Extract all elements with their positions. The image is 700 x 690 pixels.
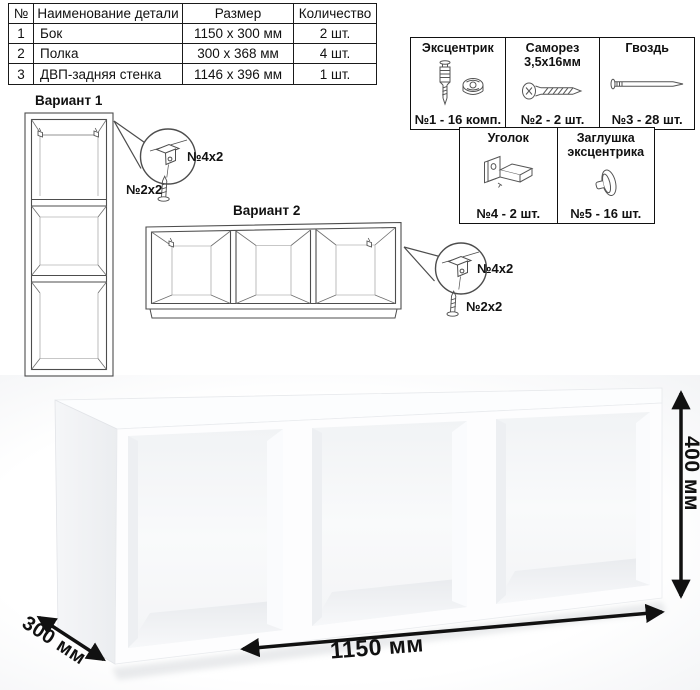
hardware-item-eccentric: Эксцентрик №1 - 16 комп. — [411, 38, 506, 129]
table-cell: Бок — [34, 24, 183, 44]
hardware-item-screw: Саморез 3,5х16мм №2 - 2 шт. — [506, 38, 601, 129]
hardware-caption: №4 - 2 шт. — [476, 207, 540, 221]
table-cell: 1 — [9, 24, 34, 44]
hardware-title: Саморез 3,5х16мм — [508, 41, 598, 69]
table-cell: Полка — [34, 44, 183, 64]
parts-table-header-name: Наименование детали — [34, 4, 183, 24]
parts-table-header-qty: Количество — [294, 4, 376, 24]
table-cell: 2 — [9, 44, 34, 64]
parts-table-header-num: № — [9, 4, 34, 24]
hardware-title: Заглушка эксцентрика — [560, 131, 653, 159]
hardware-box-row1: Эксцентрик №1 - 16 комп. — [410, 37, 695, 130]
table-cell: 300 х 368 мм — [183, 44, 294, 64]
corner-bracket-icon — [474, 145, 542, 207]
variant2-label: Вариант 2 — [233, 203, 300, 218]
eccentric-cam-icon — [425, 55, 491, 113]
hardware-item-corner-bracket: Уголок №4 - 2 шт. — [460, 128, 558, 223]
parts-table: № Наименование детали Размер Количество … — [8, 3, 377, 85]
table-cell: 4 шт. — [294, 44, 376, 64]
hardware-title: Эксцентрик — [422, 41, 494, 55]
variant1-screw-qty-label: №2х2 — [126, 182, 162, 197]
cam-cap-icon — [578, 159, 634, 207]
variant1-label: Вариант 1 — [35, 93, 102, 108]
variant2-bracket-qty-label: №4х2 — [477, 261, 513, 276]
variant1-drawing — [25, 113, 113, 376]
table-cell: 2 шт. — [294, 24, 376, 44]
assembly-instruction-sheet: № Наименование детали Размер Количество … — [0, 0, 700, 690]
parts-table-header-size: Размер — [183, 4, 294, 24]
table-cell: ДВП-задняя стенка — [34, 64, 183, 84]
variant2-screw-qty-label: №2х2 — [466, 299, 502, 314]
height-dimension-label: 400 мм — [679, 436, 700, 511]
hardware-box-row2: Уголок №4 - 2 шт. Заглушка эксцентрика — [459, 127, 655, 224]
hardware-caption: №5 - 16 шт. — [570, 207, 641, 221]
screw-icon — [518, 69, 588, 113]
variant2-drawing — [146, 223, 401, 319]
hardware-caption: №2 - 2 шт. — [521, 113, 585, 127]
nail-icon — [607, 55, 687, 113]
hardware-caption: №3 - 28 шт. — [612, 113, 683, 127]
hardware-title: Гвоздь — [625, 41, 669, 55]
hardware-item-nail: Гвоздь №3 - 28 шт. — [600, 38, 694, 129]
variant1-bracket-qty-label: №4х2 — [187, 149, 223, 164]
table-cell: 1 шт. — [294, 64, 376, 84]
table-cell: 1150 х 300 мм — [183, 24, 294, 44]
hardware-caption: №1 - 16 комп. — [415, 113, 502, 127]
hardware-item-cam-cap: Заглушка эксцентрика №5 - 16 шт. — [558, 128, 655, 223]
hardware-title: Уголок — [488, 131, 529, 145]
table-cell: 1146 х 396 мм — [183, 64, 294, 84]
table-cell: 3 — [9, 64, 34, 84]
